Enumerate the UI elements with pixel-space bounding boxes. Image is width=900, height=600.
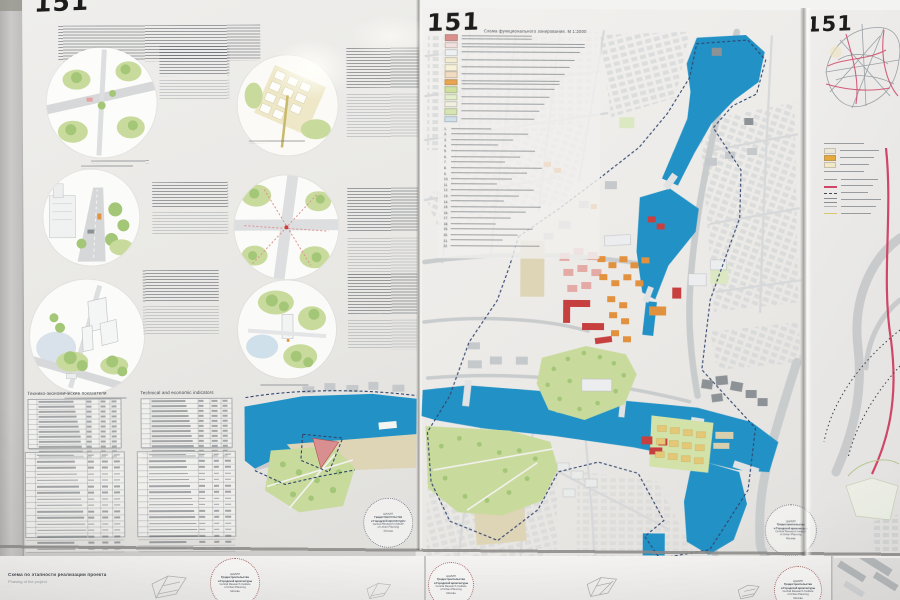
table-cell-value [88, 454, 94, 455]
index-label [451, 156, 520, 159]
index-label [451, 212, 526, 215]
legend-line-sample [824, 193, 837, 194]
table-cell-text [37, 536, 87, 538]
diagram-text-4-en [347, 238, 419, 278]
legend-label [841, 213, 871, 216]
table-cell-value [199, 516, 205, 517]
table-cell-value [199, 529, 205, 530]
table-cell-text [151, 420, 189, 422]
legend-swatch [444, 101, 457, 108]
table-cell-value [111, 416, 117, 417]
legend-swatch [444, 109, 457, 116]
main-road-band [836, 238, 900, 472]
table-cell-value [199, 460, 205, 461]
table-cell-text [37, 492, 80, 494]
table-cell-value [103, 529, 109, 530]
diagram-circle-intersection-plan [234, 175, 339, 280]
table-cell-text [37, 461, 75, 463]
legend-line-sample [824, 213, 837, 214]
board-left: 151 [22, 0, 425, 552]
table-cell-value [87, 441, 93, 442]
board-edge-shadow [416, 0, 422, 550]
table-cell-value [87, 426, 93, 427]
table-cell-value [102, 461, 108, 462]
table-cell-value [214, 522, 220, 523]
table-cell-value [102, 486, 108, 487]
legend-swatch [824, 148, 836, 154]
table-cell-value [87, 446, 93, 447]
indicator-table [140, 398, 232, 449]
diagram-text-3-en [152, 212, 228, 234]
table-cell-value [226, 529, 232, 530]
index-number: 22. [444, 244, 451, 248]
table-cell-text [37, 523, 85, 525]
table-cell-value [102, 454, 108, 455]
table-cell-value [112, 441, 118, 442]
legend-swatch [444, 116, 457, 123]
index-number: 2. [444, 133, 451, 137]
table-cell-value [114, 461, 120, 462]
table-cell-value [214, 541, 220, 542]
legend-swatch [824, 162, 836, 168]
map-title: Схема функционального зонирования. М 1:2… [484, 28, 634, 34]
table-cell-value [199, 535, 205, 536]
index-number: 21. [444, 239, 451, 243]
table-cell-value [223, 425, 228, 426]
table-cell-text [39, 431, 79, 433]
index-label [451, 133, 528, 136]
diagram-circle-axon-buildings [30, 279, 145, 394]
legend-row [824, 210, 886, 217]
table-cell-value [88, 523, 94, 524]
board-center: 151 Схема функционального зонирования. М… [416, 8, 811, 562]
table-cell-value [111, 421, 117, 422]
table-cell-value [114, 479, 120, 480]
table-cell-text [149, 516, 196, 518]
indicator-table [27, 398, 121, 449]
table-cell-value [214, 535, 220, 536]
index-label [451, 128, 491, 131]
round-stamp: ЦНИИПГрадостроительстваи Городской архит… [363, 498, 413, 548]
table-cell-value [214, 472, 220, 473]
diagram-text-2-en [347, 94, 419, 138]
index-number: 14. [444, 200, 451, 204]
object-index-list: 1.2.3.4.5.6.7.8.9.10.11.12.13.14.15.16.1… [444, 126, 595, 250]
index-row: 22. [444, 244, 594, 251]
transport-legend [824, 140, 886, 217]
index-label [451, 245, 540, 248]
overlapping-map-fragment [833, 558, 900, 600]
table-cell-value [225, 497, 231, 498]
diagram-text-2 [346, 48, 418, 88]
table-cell-text [37, 480, 78, 482]
table-cell-value [212, 425, 217, 426]
table-cell-value [111, 401, 117, 402]
table-cell-value [214, 485, 220, 486]
legend-row [824, 197, 886, 204]
table-cell-value [225, 510, 231, 511]
table-cell-text [39, 401, 74, 403]
table-cell-text [39, 446, 82, 448]
table-cell-value [199, 523, 205, 524]
table-cell-value [87, 436, 93, 437]
table-cell-value [214, 497, 220, 498]
table-cell-value [114, 486, 120, 487]
index-number: 6. [444, 155, 451, 159]
table-cell-value [111, 411, 117, 412]
table-cell-value [100, 436, 106, 437]
stamp-text-line: Москва [434, 592, 468, 595]
diagram-circle-road-junction [46, 47, 157, 158]
index-label [451, 150, 535, 153]
index-label [451, 223, 496, 226]
legend-swatch [445, 79, 458, 86]
table-cell-value [86, 406, 92, 407]
table-cell-value [223, 415, 228, 416]
legend-row [824, 183, 886, 190]
table-cell-value [88, 517, 94, 518]
legend-label [841, 185, 873, 188]
table-cell-text [152, 445, 194, 447]
table-cell-value [114, 492, 120, 493]
table-cell-value [198, 405, 203, 406]
panel-number-center: 151 [426, 7, 480, 37]
table-cell-text [152, 430, 192, 432]
table-cell-value [100, 401, 106, 402]
table-cell-value [88, 486, 94, 487]
legend-swatch [824, 155, 836, 161]
stamp-text-line: Москва [371, 529, 405, 533]
legend-line-sample [824, 206, 837, 207]
index-label [451, 178, 512, 181]
table-cell-value [223, 410, 228, 411]
table-cell-value [88, 511, 94, 512]
table-cell-value [225, 466, 231, 467]
table-cell-text [152, 440, 193, 442]
wall-left-strip [0, 0, 24, 600]
table-cell-value [213, 454, 219, 455]
table-cell-text [149, 523, 197, 525]
table-cell-value [198, 440, 203, 441]
table-cell-value [214, 479, 220, 480]
legend-swatch [445, 64, 458, 71]
diagram-caption-3 [81, 165, 133, 168]
table-cell-value [225, 472, 231, 473]
legend-swatch [444, 86, 457, 93]
table-cell-text [149, 466, 188, 468]
table-cell-value [198, 400, 203, 401]
table-cell-text [151, 405, 186, 407]
table-cell-value [114, 523, 120, 524]
table-cell-text [149, 479, 190, 481]
table-cell-text [149, 529, 198, 531]
legend-heading [824, 171, 864, 174]
table-cell-value [199, 454, 205, 455]
table-cell-text [151, 415, 188, 417]
table-cell-value [225, 516, 231, 517]
legend-label [462, 74, 565, 77]
table-cell-text [149, 535, 198, 537]
exhibition-photo: 151 [0, 0, 900, 600]
table-cell-text [39, 421, 78, 423]
table-cell-text [149, 473, 189, 475]
round-stamp: ЦНИИПГрадостроительстваи Городской архит… [428, 562, 474, 600]
table-cell-value [198, 445, 203, 446]
table-cell-value [103, 504, 109, 505]
transport-scheme-map [803, 10, 900, 600]
phasing-sketch [146, 574, 190, 600]
table-cell-value [102, 479, 108, 480]
index-number: 5. [444, 149, 451, 153]
legend-label [461, 111, 539, 114]
table-cell-text [148, 454, 185, 456]
table-cell-value [115, 542, 121, 543]
diagram-text-6-en [348, 320, 420, 350]
legend-label [840, 157, 874, 160]
index-number: 11. [444, 183, 451, 187]
table-cell-value [102, 473, 108, 474]
table-cell-text [152, 425, 191, 427]
table-cell-value [114, 498, 120, 499]
diagram-circle-green-mounds [238, 280, 337, 379]
legend-row [824, 155, 886, 162]
table-cell-value [199, 485, 205, 486]
table-cell-value [225, 460, 231, 461]
legend-row [824, 168, 886, 176]
table-cell-value [114, 511, 120, 512]
indicator-table [137, 451, 237, 538]
index-label [451, 139, 513, 142]
legend-label [841, 192, 868, 195]
index-number: 17. [444, 216, 451, 220]
index-number: 10. [444, 177, 451, 181]
table-cell-value [226, 541, 232, 542]
index-number: 18. [444, 222, 451, 226]
table-cell-value [212, 420, 217, 421]
table-cell-value [88, 461, 94, 462]
legend-label [462, 80, 560, 85]
index-label [451, 206, 541, 209]
legend-row [824, 148, 886, 155]
table-cell-value [103, 542, 109, 543]
table-cell-value [214, 466, 220, 467]
table-cell-value [212, 445, 217, 446]
legend-heading [824, 143, 864, 146]
index-number: 7. [444, 161, 451, 165]
table-cell-text [37, 542, 74, 544]
table-cell-value [88, 504, 94, 505]
table-cell-value [114, 529, 120, 530]
legend-swatch [445, 72, 458, 79]
legend-label [840, 150, 879, 153]
table-cell-value [225, 485, 231, 486]
legend-label [462, 51, 580, 54]
table-cell-value [87, 431, 93, 432]
table-cell-value [199, 491, 205, 492]
table-cell-value [88, 536, 94, 537]
index-label [451, 228, 533, 231]
index-number: 13. [444, 194, 451, 198]
index-number: 3. [444, 138, 451, 142]
index-number: 20. [444, 233, 451, 237]
table-cell-value [199, 510, 205, 511]
index-label [451, 217, 511, 220]
table-cell-value [199, 541, 205, 542]
table-cell-text [151, 400, 185, 402]
index-number: 9. [444, 172, 451, 176]
stamp-text-line: Москва [218, 590, 252, 593]
index-label [451, 172, 527, 175]
phasing-sketch [582, 574, 620, 600]
table-cell-text [148, 460, 186, 462]
diagram-text-1-en [160, 80, 230, 100]
index-label [451, 145, 498, 148]
legend-row [824, 176, 886, 183]
legend-swatch [445, 42, 458, 49]
table-cell-value [198, 415, 203, 416]
table-cell-text [37, 467, 76, 469]
index-label [451, 167, 542, 170]
table-cell-value [199, 504, 205, 505]
table-cell-value [100, 426, 106, 427]
table-cell-value [214, 510, 220, 511]
table-cell-value [111, 431, 117, 432]
table-cell-value [88, 479, 94, 480]
legend-label [841, 199, 881, 202]
table-title-ru: Технико-экономические показатели [27, 390, 127, 396]
legend-swatch [445, 49, 458, 56]
table-cell-text [149, 491, 192, 493]
table-cell-value [114, 536, 120, 537]
index-number: 15. [444, 205, 451, 209]
table-cell-value [214, 491, 220, 492]
table-cell-value [103, 517, 109, 518]
table-cell-value [223, 430, 228, 431]
legend-label [841, 206, 876, 209]
table-cell-value [199, 479, 205, 480]
index-number: 4. [444, 144, 451, 148]
legend-label [462, 36, 532, 41]
diagram-text-6 [348, 274, 420, 314]
table-cell-value [199, 466, 205, 467]
table-cell-value [87, 416, 93, 417]
diagram-text-1 [159, 46, 229, 76]
table-cell-value [100, 421, 106, 422]
table-cell-value [225, 491, 231, 492]
diagram-caption-1 [91, 160, 149, 163]
table-cell-value [214, 529, 220, 530]
table-cell-value [225, 479, 231, 480]
diagram-text-5 [143, 270, 219, 302]
table-cell-value [112, 446, 118, 447]
table-cell-value [212, 415, 217, 416]
table-cell-value [88, 529, 94, 530]
phasing-sketch [360, 582, 396, 600]
index-label [451, 184, 497, 187]
table-cell-text [39, 436, 80, 438]
table-cell-text [39, 406, 75, 408]
index-label [451, 234, 518, 237]
zoning-legend [444, 34, 595, 124]
table-title-en: Technical and economic indicators [140, 390, 240, 396]
index-number: 12. [444, 188, 451, 192]
diagram-circle-street-view [43, 169, 140, 266]
table-cell-value [214, 504, 220, 505]
legend-label [462, 66, 570, 69]
diagram-text-3 [152, 182, 228, 208]
table-cell-value [226, 535, 232, 536]
round-stamp: ЦНИИПГрадостроительстваи Городской архит… [774, 566, 822, 600]
bottom-caption-en: Phasing of the project [8, 579, 107, 584]
legend-label [461, 96, 549, 99]
diagram-text-5-en [143, 306, 219, 334]
table-cell-text [152, 435, 193, 437]
table-cell-text [151, 410, 187, 412]
table-cell-value [88, 498, 94, 499]
legend-row [824, 140, 886, 148]
index-label [451, 161, 505, 164]
panel-number-left: 151 [34, 0, 90, 18]
legend-line-sample [824, 179, 837, 180]
table-cell-text [39, 416, 77, 418]
table-cell-value [223, 445, 228, 446]
table-cell-value [102, 467, 108, 468]
wall-corner-shadow [0, 0, 22, 11]
phasing-sketch [730, 584, 766, 600]
table-cell-value [223, 405, 228, 406]
table-cell-value [87, 421, 93, 422]
table-cell-value [212, 440, 217, 441]
table-cell-value [100, 411, 106, 412]
legend-row [824, 190, 886, 197]
index-number: 8. [444, 166, 451, 170]
board-bottom-row: Схема по этапности реализации проекта Ph… [0, 556, 900, 600]
diagram-text-4 [347, 188, 419, 232]
table-cell-value [212, 430, 217, 431]
table-cell-value [222, 400, 227, 401]
legend-row [824, 162, 886, 169]
table-cell-value [88, 473, 94, 474]
table-cell-value [100, 431, 106, 432]
diagram-caption-2 [249, 140, 305, 143]
legend-label [840, 164, 869, 167]
legend-row [824, 204, 886, 211]
table-cell-value [100, 446, 106, 447]
table-cell-value [198, 435, 203, 436]
table-cell-value [103, 498, 109, 499]
table-cell-value [213, 460, 219, 461]
table-cell-value [214, 516, 220, 517]
table-cell-text [39, 441, 81, 443]
table-cell-value [199, 473, 205, 474]
table-cell-value [86, 401, 92, 402]
road-network-diagram [826, 24, 900, 108]
table-cell-value [225, 504, 231, 505]
table-cell-value [111, 426, 117, 427]
table-cell-value [198, 430, 203, 431]
table-cell-text [37, 511, 83, 513]
table-cell-value [103, 511, 109, 512]
table-cell-value [88, 542, 94, 543]
legend-row [444, 115, 594, 123]
table-cell-text [37, 486, 79, 488]
table-cell-value [226, 522, 232, 523]
table-cell-text [37, 530, 86, 532]
bottom-board-edge [424, 556, 426, 600]
legend-label [461, 88, 554, 91]
table-cell-value [114, 504, 120, 505]
legend-line-sample [824, 186, 837, 188]
